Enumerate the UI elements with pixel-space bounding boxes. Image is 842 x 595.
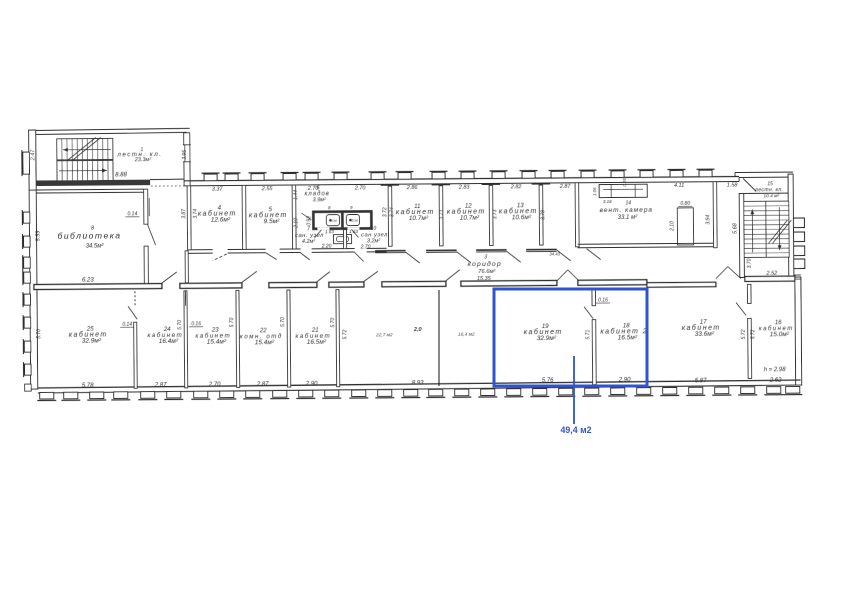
svg-text:8.93: 8.93: [412, 380, 424, 386]
svg-text:1см: 1см: [330, 219, 337, 223]
svg-text:8.88: 8.88: [115, 172, 127, 178]
svg-text:3.95: 3.95: [182, 150, 188, 160]
svg-text:4.11: 4.11: [674, 183, 684, 189]
svg-text:библиотека: библиотека: [58, 230, 122, 241]
svg-text:6.23: 6.23: [82, 278, 94, 284]
svg-text:1см: 1см: [351, 218, 358, 222]
svg-text:3.37: 3.37: [212, 187, 224, 193]
svg-text:34.5м²: 34.5м²: [86, 243, 105, 249]
svg-text:34.43: 34.43: [549, 251, 560, 256]
svg-text:1.63: 1.63: [325, 229, 334, 234]
svg-text:16,4 м2: 16,4 м2: [458, 332, 475, 338]
svg-text:5.70: 5.70: [280, 317, 286, 327]
svg-text:5.76: 5.76: [542, 378, 554, 384]
svg-text:5.72: 5.72: [342, 329, 348, 339]
svg-text:5.72: 5.72: [741, 329, 747, 339]
svg-text:10.4 м²: 10.4 м²: [763, 193, 779, 199]
svg-text:2.90: 2.90: [618, 377, 631, 383]
svg-text:4.2м²: 4.2м²: [302, 239, 315, 245]
svg-text:1.63: 1.63: [349, 229, 358, 234]
svg-text:3.73: 3.73: [439, 210, 445, 220]
svg-text:16.5м²: 16.5м²: [618, 334, 638, 341]
svg-text:14: 14: [625, 200, 631, 206]
svg-text:h = 2.98: h = 2.98: [764, 367, 787, 373]
svg-text:0.16: 0.16: [191, 321, 201, 327]
svg-text:2,0: 2,0: [413, 327, 422, 333]
svg-text:15.4м²: 15.4м²: [255, 339, 275, 346]
svg-text:2.86: 2.86: [406, 185, 419, 191]
svg-text:1.44: 1.44: [293, 190, 299, 200]
svg-text:0.14: 0.14: [127, 211, 137, 217]
svg-text:5.72: 5.72: [750, 329, 756, 339]
svg-text:22,7 м2: 22,7 м2: [375, 332, 393, 338]
svg-text:3.74: 3.74: [193, 209, 199, 219]
svg-text:15.4м²: 15.4м²: [207, 339, 227, 346]
svg-text:2.70: 2.70: [208, 382, 221, 388]
svg-text:5.59: 5.59: [35, 231, 41, 242]
svg-text:10: 10: [371, 226, 377, 232]
svg-text:33.6м²: 33.6м²: [695, 331, 715, 338]
svg-text:10.7м²: 10.7м²: [409, 215, 429, 222]
svg-text:1.06: 1.06: [592, 187, 597, 196]
svg-text:2.82: 2.82: [510, 184, 522, 190]
svg-text:32.9м²: 32.9м²: [82, 338, 102, 345]
svg-text:3: 3: [484, 254, 487, 260]
svg-text:3.72: 3.72: [382, 207, 388, 217]
svg-text:10.6м²: 10.6м²: [512, 214, 532, 221]
svg-text:3.74: 3.74: [389, 207, 395, 217]
svg-text:33.1 м²: 33.1 м²: [618, 215, 639, 221]
svg-text:3.70: 3.70: [747, 258, 753, 268]
svg-text:5.70: 5.70: [36, 329, 42, 339]
svg-text:2.87: 2.87: [154, 382, 167, 388]
svg-text:3.87: 3.87: [181, 209, 187, 219]
svg-text:2.70: 2.70: [354, 185, 367, 191]
svg-text:2.62: 2.62: [769, 378, 782, 384]
svg-text:9.5м²: 9.5м²: [264, 218, 281, 225]
svg-text:1.58: 1.58: [727, 183, 739, 189]
svg-text:0.25: 0.25: [622, 178, 627, 187]
svg-text:5.70: 5.70: [229, 317, 235, 327]
svg-text:5.70: 5.70: [330, 318, 336, 328]
svg-text:10.7м²: 10.7м²: [460, 215, 480, 222]
svg-text:7: 7: [307, 226, 310, 232]
svg-text:2.55: 2.55: [261, 186, 274, 192]
svg-text:2.87: 2.87: [559, 184, 572, 190]
svg-text:5.87: 5.87: [695, 378, 707, 384]
svg-text:вент. камера: вент. камера: [600, 207, 653, 214]
svg-text:2.83: 2.83: [458, 185, 471, 191]
svg-text:2.20: 2.20: [321, 244, 332, 250]
svg-text:2.90: 2.90: [305, 381, 318, 387]
svg-text:2.70: 2.70: [307, 186, 320, 192]
svg-text:0.14: 0.14: [122, 322, 132, 328]
svg-text:0.80: 0.80: [680, 201, 690, 207]
svg-text:3.78: 3.78: [540, 210, 546, 220]
svg-text:5.78: 5.78: [82, 383, 94, 389]
svg-text:12.6м²: 12.6м²: [211, 216, 231, 223]
svg-text:2.70: 2.70: [360, 244, 371, 250]
svg-text:3.9м²: 3.9м²: [313, 197, 326, 203]
svg-text:2.10: 2.10: [669, 221, 675, 232]
svg-text:коридор: коридор: [468, 260, 502, 268]
svg-text:15.0м²: 15.0м²: [770, 331, 790, 338]
svg-text:5.70: 5.70: [177, 320, 183, 330]
svg-text:2.52: 2.52: [765, 271, 777, 277]
svg-text:2.87: 2.87: [256, 382, 269, 388]
svg-text:32.9м²: 32.9м²: [537, 335, 557, 342]
svg-text:3.16: 3.16: [603, 199, 612, 204]
svg-text:3.94: 3.94: [705, 215, 711, 225]
svg-text:23.3м²: 23.3м²: [134, 157, 152, 163]
svg-text:лестн. кл.: лестн. кл.: [754, 187, 783, 193]
svg-text:16.4м²: 16.4м²: [159, 338, 179, 345]
svg-text:5.68: 5.68: [732, 222, 738, 234]
svg-text:16.5м²: 16.5м²: [307, 339, 327, 346]
svg-text:76.6м²: 76.6м²: [478, 269, 496, 275]
svg-text:49,4 м2: 49,4 м2: [561, 425, 592, 435]
svg-text:2.47: 2.47: [30, 149, 36, 162]
svg-text:0.16: 0.16: [598, 298, 608, 304]
svg-text:2.10: 2.10: [293, 218, 299, 229]
svg-text:5.71: 5.71: [585, 330, 591, 340]
svg-text:3.73: 3.73: [492, 209, 498, 219]
